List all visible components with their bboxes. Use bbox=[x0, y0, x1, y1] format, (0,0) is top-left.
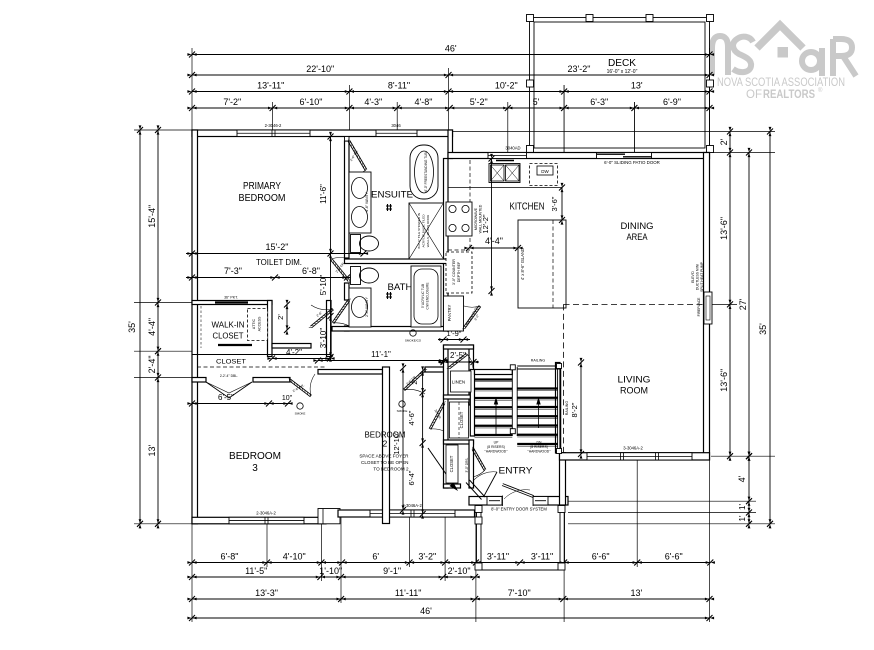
svg-text:6'-0" FREESTANDING TUB: 6'-0" FREESTANDING TUB bbox=[424, 152, 428, 191]
svg-text:3'-2": 3'-2" bbox=[418, 552, 436, 562]
svg-text:13': 13' bbox=[147, 445, 157, 457]
svg-text:10": 10" bbox=[282, 395, 293, 402]
svg-text:3'-11": 3'-11" bbox=[487, 552, 509, 562]
svg-text:2-3046-2: 2-3046-2 bbox=[265, 123, 282, 128]
svg-text:3046: 3046 bbox=[391, 123, 401, 128]
svg-text:4' x 8'-6" ISLAND: 4' x 8'-6" ISLAND bbox=[520, 248, 525, 280]
svg-text:4'-10": 4'-10" bbox=[283, 552, 306, 562]
svg-text:BEDROOM: BEDROOM bbox=[239, 193, 286, 204]
svg-text:CLOSET: CLOSET bbox=[459, 411, 464, 428]
svg-text:SMOKE: SMOKE bbox=[295, 412, 306, 416]
svg-text:5' ACRYLIC TUB: 5' ACRYLIC TUB bbox=[421, 284, 425, 308]
svg-text:RAILING: RAILING bbox=[565, 401, 569, 416]
svg-text:9'-1": 9'-1" bbox=[383, 566, 401, 576]
svg-text:WALK-IN: WALK-IN bbox=[212, 320, 245, 330]
svg-text:4'-4": 4'-4" bbox=[147, 318, 157, 336]
svg-text:36" PKT.: 36" PKT. bbox=[224, 296, 238, 300]
svg-text:DECK: DECK bbox=[608, 57, 636, 69]
svg-text:CLOSET: CLOSET bbox=[213, 331, 244, 341]
svg-text:PANTRY: PANTRY bbox=[447, 304, 452, 321]
svg-text:8'-0" ENTRY DOOR SYSTEM: 8'-0" ENTRY DOOR SYSTEM bbox=[491, 507, 547, 512]
svg-text:ACRYLIC BASE, TILED: ACRYLIC BASE, TILED bbox=[422, 214, 426, 248]
svg-text:6'-6": 6'-6" bbox=[665, 552, 683, 562]
svg-text:35': 35' bbox=[758, 323, 768, 335]
svg-text:6'-6": 6'-6" bbox=[592, 552, 610, 562]
svg-text:7'-2": 7'-2" bbox=[223, 97, 241, 107]
svg-text:ATTIC: ATTIC bbox=[252, 319, 256, 330]
svg-text:SPACE ABOVE FOYER: SPACE ABOVE FOYER bbox=[359, 454, 409, 459]
svg-text:3'-0" COUNTER: 3'-0" COUNTER bbox=[452, 259, 456, 285]
svg-text:TOILET DIM.: TOILET DIM. bbox=[256, 257, 302, 267]
svg-text:6'-3": 6'-3" bbox=[590, 97, 608, 107]
svg-text:CLOSET TO BE OPEN: CLOSET TO BE OPEN bbox=[361, 460, 409, 465]
svg-text:"HARDWOOD": "HARDWOOD" bbox=[485, 450, 509, 454]
svg-text:4'-8": 4'-8" bbox=[414, 97, 432, 107]
svg-text:13'-6": 13'-6" bbox=[719, 369, 729, 392]
svg-text:4': 4' bbox=[737, 475, 747, 482]
svg-text:3040AD: 3040AD bbox=[505, 146, 520, 151]
svg-text:FIREPLACE: FIREPLACE bbox=[697, 297, 701, 317]
svg-text:REALTORS: REALTORS bbox=[763, 89, 815, 101]
svg-text:7'-3": 7'-3" bbox=[224, 266, 242, 276]
svg-text:13'-11": 13'-11" bbox=[257, 81, 284, 91]
svg-text:8'-11": 8'-11" bbox=[388, 81, 410, 91]
svg-text:27': 27' bbox=[738, 298, 748, 310]
svg-text:4'-3": 4'-3" bbox=[364, 97, 382, 107]
svg-text:DN: DN bbox=[537, 441, 542, 445]
svg-text:6'-8": 6'-8" bbox=[302, 266, 320, 276]
svg-text:1'-10": 1'-10" bbox=[319, 566, 342, 576]
svg-text:46': 46' bbox=[420, 606, 432, 616]
svg-text:TO BEDROOM 2: TO BEDROOM 2 bbox=[373, 467, 409, 472]
svg-text:ELEV'D: ELEV'D bbox=[691, 271, 695, 283]
svg-text:3'-10": 3'-10" bbox=[319, 328, 328, 349]
svg-text:ENSUITE: ENSUITE bbox=[371, 190, 413, 200]
svg-text:AREA: AREA bbox=[627, 232, 649, 243]
svg-text:(8 RISERS): (8 RISERS) bbox=[487, 445, 505, 449]
svg-text:SPLIT HEAT PUMP: SPLIT HEAT PUMP bbox=[700, 261, 704, 292]
svg-text:2': 2' bbox=[719, 138, 729, 145]
svg-text:4'-6": 4'-6" bbox=[407, 410, 416, 425]
svg-text:NOVA SCOTIA ASSOCIATION: NOVA SCOTIA ASSOCIATION bbox=[717, 75, 845, 89]
svg-text:ACCESS: ACCESS bbox=[258, 316, 262, 331]
svg-text:35': 35' bbox=[127, 321, 137, 333]
svg-text:RAILING: RAILING bbox=[531, 359, 546, 363]
svg-text:4'-4": 4'-4" bbox=[485, 236, 503, 246]
svg-text:2': 2' bbox=[412, 379, 419, 384]
svg-text:PRIMARY: PRIMARY bbox=[243, 181, 281, 192]
svg-text:DW: DW bbox=[541, 169, 549, 174]
svg-text:6'-9": 6'-9" bbox=[663, 97, 681, 107]
svg-text:WALLS, GLASS DOOR: WALLS, GLASS DOOR bbox=[426, 214, 430, 247]
svg-text:12'-2": 12'-2" bbox=[481, 214, 490, 233]
svg-text:12'-10": 12'-10" bbox=[392, 431, 401, 455]
svg-text:2': 2' bbox=[276, 314, 285, 320]
svg-text:22'-10": 22'-10" bbox=[306, 64, 334, 74]
svg-text:DEPTH REF: DEPTH REF bbox=[457, 261, 461, 282]
svg-text:5': 5' bbox=[533, 97, 540, 107]
svg-text:10'-2": 10'-2" bbox=[495, 81, 518, 91]
svg-text:LINEN: LINEN bbox=[452, 380, 465, 385]
svg-text:2'-0" VANITY: 2'-0" VANITY bbox=[365, 296, 369, 316]
svg-text:MICROWAVE: MICROWAVE bbox=[474, 207, 478, 230]
svg-text:®: ® bbox=[818, 87, 823, 94]
svg-text:3'x4'-6" TILE SHOWER IN: 3'x4'-6" TILE SHOWER IN bbox=[417, 213, 421, 249]
svg-text:3: 3 bbox=[252, 463, 258, 474]
svg-text:11'-11": 11'-11" bbox=[395, 588, 422, 598]
svg-text:6'-0" SLIDING PATIO DOOR: 6'-0" SLIDING PATIO DOOR bbox=[604, 160, 660, 165]
svg-text:C/W ENCLOSURE: C/W ENCLOSURE bbox=[426, 283, 430, 310]
svg-text:6'-4": 6'-4" bbox=[407, 470, 416, 485]
svg-text:46': 46' bbox=[445, 44, 457, 54]
svg-text:13': 13' bbox=[631, 81, 643, 91]
svg-text:15'-2": 15'-2" bbox=[266, 242, 289, 252]
svg-text:BEDROOM: BEDROOM bbox=[229, 451, 281, 462]
svg-text:1': 1' bbox=[738, 504, 747, 510]
svg-text:2'-4": 2'-4" bbox=[147, 355, 157, 373]
svg-text:16'-0" x 12'-0": 16'-0" x 12'-0" bbox=[607, 69, 638, 75]
svg-text:6'-10": 6'-10" bbox=[300, 97, 323, 107]
svg-text:1': 1' bbox=[738, 515, 747, 521]
svg-text:3-3046A-2: 3-3046A-2 bbox=[623, 446, 643, 451]
svg-text:6'-8": 6'-8" bbox=[221, 552, 239, 562]
svg-text:DUCTLESS MINI: DUCTLESS MINI bbox=[696, 264, 700, 290]
svg-text:3'-11": 3'-11" bbox=[531, 552, 553, 562]
svg-text:ROOM: ROOM bbox=[620, 386, 648, 397]
svg-text:5'-2": 5'-2" bbox=[470, 97, 488, 107]
svg-text:4'-6" VANITY: 4'-6" VANITY bbox=[365, 191, 369, 211]
svg-text:DINING: DINING bbox=[621, 221, 654, 232]
svg-text:8'-2": 8'-2" bbox=[570, 402, 579, 417]
svg-text:KITCHEN: KITCHEN bbox=[510, 202, 545, 213]
svg-text:SMOKE: SMOKE bbox=[397, 409, 408, 413]
svg-text:OF: OF bbox=[746, 89, 762, 101]
svg-text:11'-6": 11'-6" bbox=[319, 184, 328, 204]
svg-text:15'-4": 15'-4" bbox=[147, 205, 157, 228]
svg-text:3'-6": 3'-6" bbox=[550, 196, 559, 211]
svg-text:13'-3": 13'-3" bbox=[255, 588, 278, 598]
svg-text:2-3046A-2: 2-3046A-2 bbox=[256, 510, 276, 515]
svg-text:CLOSET: CLOSET bbox=[216, 360, 246, 366]
svg-text:13': 13' bbox=[631, 588, 643, 598]
svg-text:11'-5": 11'-5" bbox=[245, 566, 267, 576]
svg-text:2: 2 bbox=[383, 439, 388, 449]
svg-text:1'-9": 1'-9" bbox=[447, 329, 462, 338]
svg-text:ENTRY: ENTRY bbox=[499, 466, 534, 477]
svg-text:2-2'-4" DBL.: 2-2'-4" DBL. bbox=[220, 374, 238, 378]
svg-text:"HARDWOOD": "HARDWOOD" bbox=[528, 450, 552, 454]
svg-text:23'-2": 23'-2" bbox=[568, 64, 591, 74]
svg-text:LIVING: LIVING bbox=[618, 375, 651, 386]
svg-text:11'-1": 11'-1" bbox=[371, 350, 391, 359]
svg-text:2'-10": 2'-10" bbox=[448, 566, 471, 576]
svg-text:13'-6": 13'-6" bbox=[719, 217, 729, 240]
svg-text:3'-0" DRS.: 3'-0" DRS. bbox=[465, 457, 469, 472]
svg-text:6': 6' bbox=[372, 552, 379, 562]
svg-text:BATH: BATH bbox=[388, 282, 413, 292]
svg-text:7'-10": 7'-10" bbox=[508, 588, 531, 598]
svg-text:6'-5": 6'-5" bbox=[218, 393, 234, 402]
svg-text:5'-10": 5'-10" bbox=[319, 275, 328, 296]
svg-text:4'-2": 4'-2" bbox=[286, 348, 302, 357]
svg-text:UP: UP bbox=[494, 441, 499, 445]
svg-text:CLOSET: CLOSET bbox=[449, 455, 454, 472]
svg-text:(8 RISERS): (8 RISERS) bbox=[530, 445, 548, 449]
svg-text:SMOKE/CO: SMOKE/CO bbox=[405, 339, 422, 343]
